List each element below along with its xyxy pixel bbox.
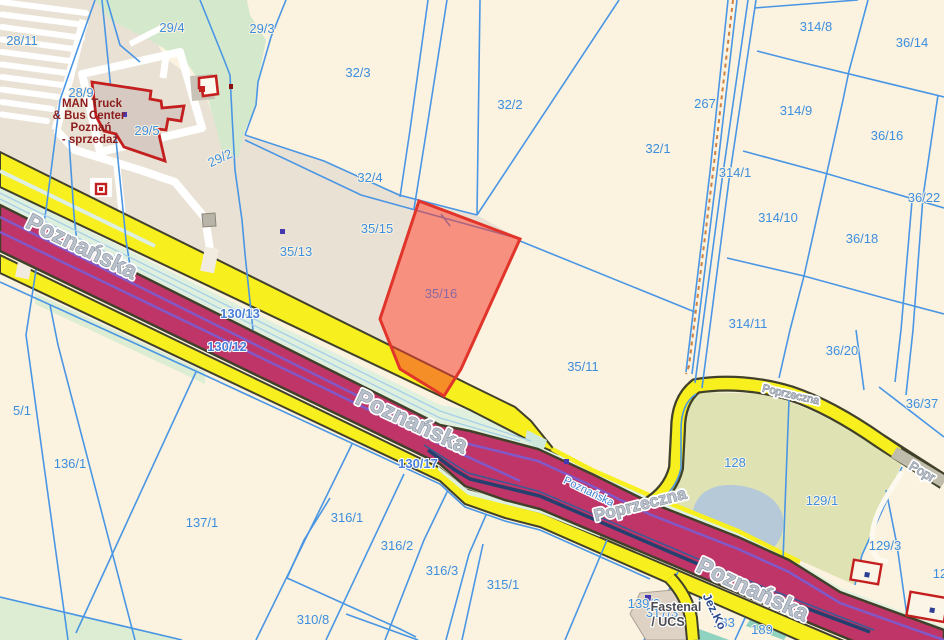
svg-text:35/13: 35/13 xyxy=(280,244,313,259)
svg-text:MAN Truck: MAN Truck xyxy=(62,98,123,110)
svg-text:35/11: 35/11 xyxy=(567,359,599,374)
svg-text:36/16: 36/16 xyxy=(871,128,904,143)
svg-text:316/3: 316/3 xyxy=(426,563,459,578)
svg-text:129/1: 129/1 xyxy=(806,493,839,508)
svg-text:130/17: 130/17 xyxy=(398,456,438,471)
svg-text:36/20: 36/20 xyxy=(826,343,859,358)
svg-text:29/4: 29/4 xyxy=(159,20,184,35)
svg-text:314/9: 314/9 xyxy=(780,103,813,118)
svg-text:36/18: 36/18 xyxy=(846,231,879,246)
svg-text:129/3: 129/3 xyxy=(869,538,902,553)
svg-text:/ UCS: / UCS xyxy=(651,615,684,629)
svg-text:12: 12 xyxy=(933,566,944,581)
svg-text:36/14: 36/14 xyxy=(896,35,929,50)
svg-text:5/1: 5/1 xyxy=(13,403,31,418)
svg-text:314/11: 314/11 xyxy=(729,316,768,331)
svg-text:35/15: 35/15 xyxy=(361,221,394,236)
svg-text:32/1: 32/1 xyxy=(645,141,670,156)
svg-text:& Bus Center: & Bus Center xyxy=(53,110,126,122)
svg-text:189: 189 xyxy=(751,622,773,637)
svg-text:Fastenal: Fastenal xyxy=(651,600,702,614)
svg-text:32/4: 32/4 xyxy=(357,170,382,185)
svg-text:32/2: 32/2 xyxy=(497,97,522,112)
svg-text:35/16: 35/16 xyxy=(425,286,458,301)
svg-text:316/2: 316/2 xyxy=(381,538,414,553)
svg-text:130/13: 130/13 xyxy=(220,306,260,321)
svg-text:314/1: 314/1 xyxy=(719,165,752,180)
svg-text:36/37: 36/37 xyxy=(906,396,939,411)
svg-text:310/8: 310/8 xyxy=(297,612,330,627)
svg-text:136/1: 136/1 xyxy=(54,456,87,471)
svg-text:29/3: 29/3 xyxy=(249,21,274,36)
svg-text:137/1: 137/1 xyxy=(186,515,219,530)
svg-text:36/22: 36/22 xyxy=(908,190,941,205)
svg-text:128: 128 xyxy=(724,455,746,470)
svg-text:- sprzedaż: - sprzedaż xyxy=(62,134,118,146)
svg-text:316/1: 316/1 xyxy=(331,510,364,525)
svg-text:315/1: 315/1 xyxy=(487,577,520,592)
svg-text:130/12: 130/12 xyxy=(207,339,247,354)
svg-text:29/5: 29/5 xyxy=(134,123,159,138)
svg-text:28/11: 28/11 xyxy=(6,33,38,48)
svg-text:Poznań: Poznań xyxy=(71,122,112,134)
svg-text:314/8: 314/8 xyxy=(800,19,833,34)
svg-text:267: 267 xyxy=(694,96,716,111)
svg-text:32/3: 32/3 xyxy=(345,65,370,80)
svg-text:314/10: 314/10 xyxy=(758,210,798,225)
